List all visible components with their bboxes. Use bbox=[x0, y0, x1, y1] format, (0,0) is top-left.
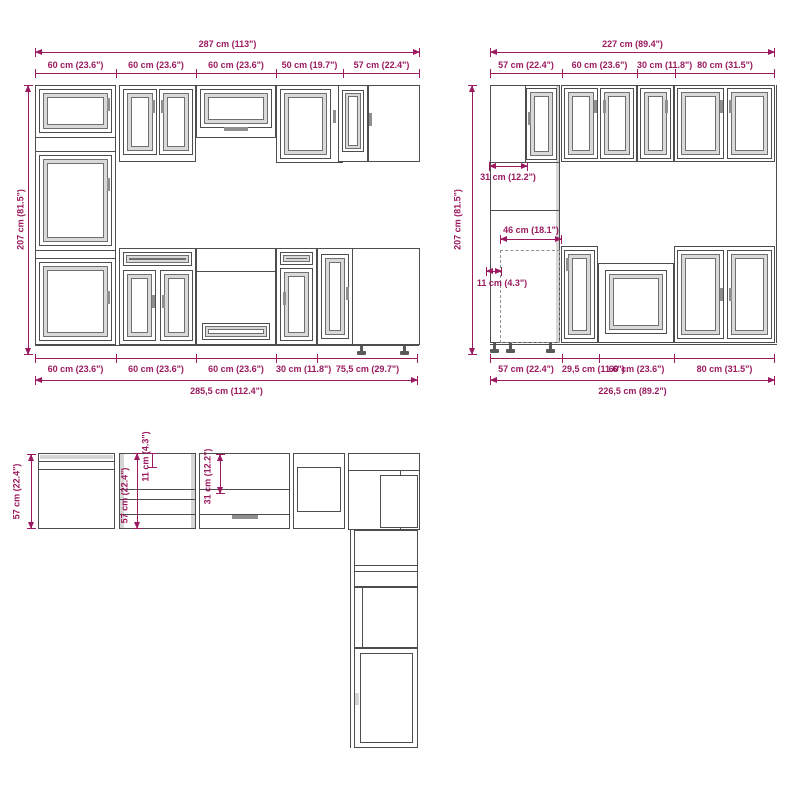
plan-cabinet bbox=[354, 587, 418, 648]
dimension-line-31 bbox=[220, 454, 221, 494]
dim-label-31: 31 cm (12.2") bbox=[203, 417, 214, 537]
plan-line bbox=[120, 514, 195, 515]
plan-handle bbox=[355, 693, 359, 705]
plan-run-wall-line bbox=[350, 530, 351, 748]
dimension-line-depth-left bbox=[31, 454, 32, 529]
plan-handle bbox=[232, 515, 258, 519]
dim-label-11: 11 cm (4.3") bbox=[141, 397, 152, 517]
plan-line bbox=[120, 489, 195, 490]
plan-cabinet bbox=[38, 453, 115, 529]
plan-line bbox=[39, 469, 114, 470]
dim-tick bbox=[27, 528, 36, 529]
dim-tick bbox=[27, 454, 36, 455]
dimension-line-depth-inner bbox=[137, 453, 138, 529]
kitchen-dimension-diagram: 287 cm (113") 60 cm (23.6") 60 cm (23.6"… bbox=[0, 0, 800, 800]
dim-tick bbox=[216, 454, 225, 455]
dim-label-depth-inner: 57 cm (22.4") bbox=[120, 436, 131, 556]
dim-tick bbox=[216, 493, 225, 494]
plan-cabinet bbox=[119, 453, 196, 529]
plan-inner-detail bbox=[297, 467, 341, 512]
plan-inner-detail bbox=[380, 475, 418, 528]
plan-side-panel bbox=[191, 454, 195, 528]
plan-line bbox=[349, 470, 419, 471]
plan-line bbox=[355, 571, 417, 572]
plan-line bbox=[120, 499, 195, 500]
plan-line bbox=[362, 588, 363, 647]
dimension-line-11 bbox=[152, 453, 153, 468]
plan-line bbox=[39, 461, 114, 462]
plan-view: 57 cm (22.4") 57 cm (22.4") 11 cm (4.3")… bbox=[0, 0, 800, 800]
plan-line bbox=[355, 565, 417, 566]
plan-cabinet bbox=[354, 530, 418, 587]
plan-inner-detail bbox=[360, 653, 413, 743]
dim-label-depth-left: 57 cm (22.4") bbox=[12, 432, 23, 552]
plan-worktop-edge bbox=[40, 455, 113, 459]
dim-tick bbox=[133, 528, 142, 529]
